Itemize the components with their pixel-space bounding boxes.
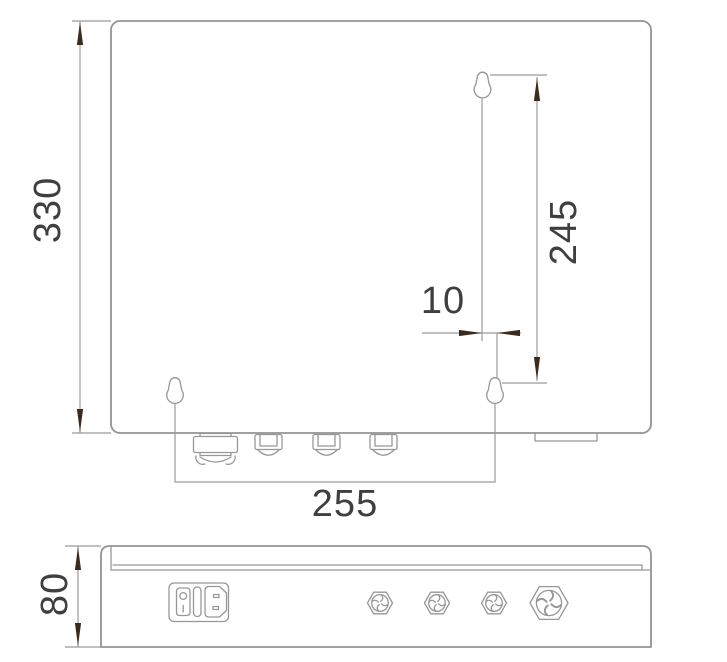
gland-nut [194,437,238,453]
cable-gland-large-profile [194,434,238,465]
dim-label-offset: 10 [421,282,465,320]
gland-dome [200,457,231,462]
technical-drawing-canvas: 330 245 10 255 80 [0,0,727,662]
side-view [101,546,651,647]
arrowhead-down [77,409,83,432]
cable-gland-small-profile-3 [370,435,397,456]
arrowhead-up [77,22,83,45]
screw-fitting-3 [482,592,507,614]
cable-gland-small-profile-2 [313,435,340,456]
screw-fitting-1 [368,592,393,614]
gland-dome [316,450,338,456]
cable-gland-small-profile-1 [255,435,282,456]
screw-fitting-2 [425,592,450,614]
gland-body [260,435,277,447]
arrowhead-up [75,547,81,570]
gland-dome [258,450,280,456]
drawing-svg [0,0,727,662]
dim-label-height: 330 [29,177,67,243]
dim-label-horizontal-spacing: 255 [312,485,378,523]
dim-label-depth: 80 [36,572,74,616]
power-entry-module [169,583,229,622]
mounting-tab [535,433,597,441]
dimension-330 [72,21,111,433]
arrowhead-down [75,623,81,646]
dim-label-vertical-spacing: 245 [545,199,583,265]
gland-dome [373,450,395,456]
gland-body [318,435,335,447]
gland-body [375,435,392,447]
